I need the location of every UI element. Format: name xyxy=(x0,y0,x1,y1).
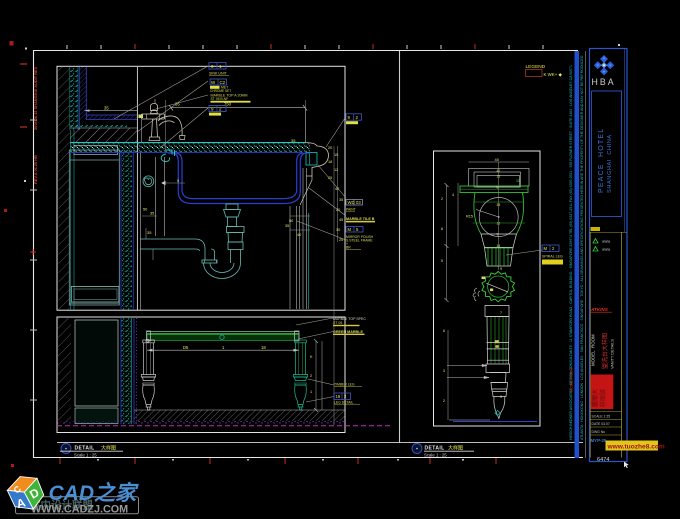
svg-text:15: 15 xyxy=(334,153,338,157)
svg-text:Scale 1 : 25: Scale 1 : 25 xyxy=(74,453,97,458)
svg-text:12: 12 xyxy=(497,222,501,226)
svg-text:MYP-25: MYP-25 xyxy=(591,438,607,443)
svg-text:2: 2 xyxy=(443,399,445,403)
svg-text:1: 1 xyxy=(219,64,222,69)
svg-text:LEG DETAIL: LEG DETAIL xyxy=(334,400,353,404)
svg-text:PAINT: PAINT xyxy=(346,207,356,211)
svg-text:ST 05: ST 05 xyxy=(333,321,342,325)
svg-text:TIMBER LEG: TIMBER LEG xyxy=(334,383,355,387)
svg-text:CAD之家: CAD之家 xyxy=(49,481,139,505)
svg-text:3: 3 xyxy=(500,395,502,399)
svg-text:30: 30 xyxy=(336,228,340,232)
svg-text:SCALE 1:25: SCALE 1:25 xyxy=(592,415,611,419)
svg-text:样图驿: 样图驿 xyxy=(599,388,607,407)
svg-text:35: 35 xyxy=(150,211,154,216)
svg-text:WD: WD xyxy=(348,200,355,205)
svg-text:35: 35 xyxy=(285,224,289,228)
svg-text:R15: R15 xyxy=(466,215,473,219)
svg-text:35: 35 xyxy=(339,198,343,202)
svg-text:35: 35 xyxy=(497,203,501,207)
svg-text:18: 18 xyxy=(328,160,332,164)
svg-text:WWW.CADZJ.COM: WWW.CADZJ.COM xyxy=(31,504,128,516)
svg-text:35: 35 xyxy=(104,106,109,111)
svg-text:PEACE HOTEL: PEACE HOTEL xyxy=(598,128,605,193)
svg-text:ATLANTA · HONGKONG · LONDON ·: ATLANTA · HONGKONG · LONDON · LOS ANGELE… xyxy=(580,55,584,440)
svg-text:8: 8 xyxy=(497,186,499,190)
svg-text:盥洗台大样图: 盥洗台大样图 xyxy=(601,333,609,369)
svg-text:ATKINS: ATKINS xyxy=(590,307,609,312)
svg-text:MODEL ROOM: MODEL ROOM xyxy=(570,368,574,392)
svg-text:2: 2 xyxy=(441,197,443,201)
svg-text:MARBLE TILE B: MARBLE TILE B xyxy=(346,217,375,221)
svg-text:40: 40 xyxy=(297,233,301,237)
svg-text:大样图: 大样图 xyxy=(101,445,116,452)
svg-text:ST 05 B.NF: ST 05 B.NF xyxy=(211,97,229,101)
svg-text:6474: 6474 xyxy=(597,457,609,463)
svg-text:HBA: HBA xyxy=(592,77,616,87)
svg-text:CHROME SET: CHROME SET xyxy=(210,89,231,93)
svg-text:C2: C2 xyxy=(220,80,226,85)
svg-text:5: 5 xyxy=(441,259,443,263)
svg-text:盛丽大: 盛丽大 xyxy=(591,389,599,407)
svg-text:M: M xyxy=(348,227,352,232)
svg-text:35: 35 xyxy=(147,230,152,235)
svg-text:a/a/a: a/a/a xyxy=(602,248,610,252)
svg-text:D5: D5 xyxy=(183,345,189,350)
svg-text:GREEN MARBLE: GREEN MARBLE xyxy=(333,330,363,334)
svg-text:15: 15 xyxy=(497,175,501,179)
svg-text:www.tuozhe8.com: www.tuozhe8.com xyxy=(607,444,665,451)
svg-text:2: 2 xyxy=(310,374,312,378)
svg-text:1: 1 xyxy=(310,390,312,394)
svg-text:DATE 03.07: DATE 03.07 xyxy=(592,422,610,426)
svg-text:9: 9 xyxy=(497,233,499,237)
svg-text:18: 18 xyxy=(261,345,266,350)
svg-text:3: 3 xyxy=(443,369,445,373)
svg-text:S.STEEL FRAME: S.STEEL FRAME xyxy=(346,239,373,243)
svg-text:7: 7 xyxy=(500,311,502,315)
svg-text:K WK+ ◆: K WK+ ◆ xyxy=(544,72,563,77)
svg-text:8: 8 xyxy=(441,227,443,231)
svg-text:19: 19 xyxy=(336,394,341,399)
svg-text:03: 03 xyxy=(356,200,361,205)
svg-text:40: 40 xyxy=(497,169,501,173)
svg-text:Scale 1 : 25: Scale 1 : 25 xyxy=(424,453,447,458)
svg-text:M: M xyxy=(544,246,548,251)
svg-text:VANITY DETAILS: VANITY DETAILS xyxy=(611,339,615,369)
svg-text:20: 20 xyxy=(328,146,332,150)
svg-text:SHANGHAI CHINA: SHANGHAI CHINA xyxy=(607,134,613,193)
svg-text:SINK UNIT: SINK UNIT xyxy=(209,72,228,76)
svg-text:DETAIL: DETAIL xyxy=(425,445,445,451)
svg-text:REV.A 06.25 HB: REV.A 06.25 HB xyxy=(33,155,38,184)
svg-text:a/a/a: a/a/a xyxy=(602,240,610,244)
svg-text:40: 40 xyxy=(495,157,500,162)
svg-text:MODEL ROOM: MODEL ROOM xyxy=(591,334,596,366)
svg-text:6: 6 xyxy=(443,329,445,333)
svg-text:9: 9 xyxy=(211,64,214,69)
svg-text:45: 45 xyxy=(339,218,343,222)
svg-text:15: 15 xyxy=(516,179,520,183)
svg-text:9: 9 xyxy=(500,267,502,271)
svg-text:DWG No: DWG No xyxy=(592,430,606,434)
svg-text:DETAIL: DETAIL xyxy=(75,445,95,451)
svg-text:2008.06.12 SHANGHAI AUDIT REV: 2008.06.12 SHANGHAI AUDIT REV xyxy=(33,66,38,130)
svg-text:大样图: 大样图 xyxy=(448,445,463,452)
svg-text:50: 50 xyxy=(289,219,293,223)
svg-text:18: 18 xyxy=(497,244,501,248)
svg-text:BR: BR xyxy=(346,246,351,250)
svg-text:12: 12 xyxy=(334,168,338,172)
svg-text:SPIRAL LEG: SPIRAL LEG xyxy=(542,255,563,259)
svg-text:4: 4 xyxy=(452,193,454,197)
